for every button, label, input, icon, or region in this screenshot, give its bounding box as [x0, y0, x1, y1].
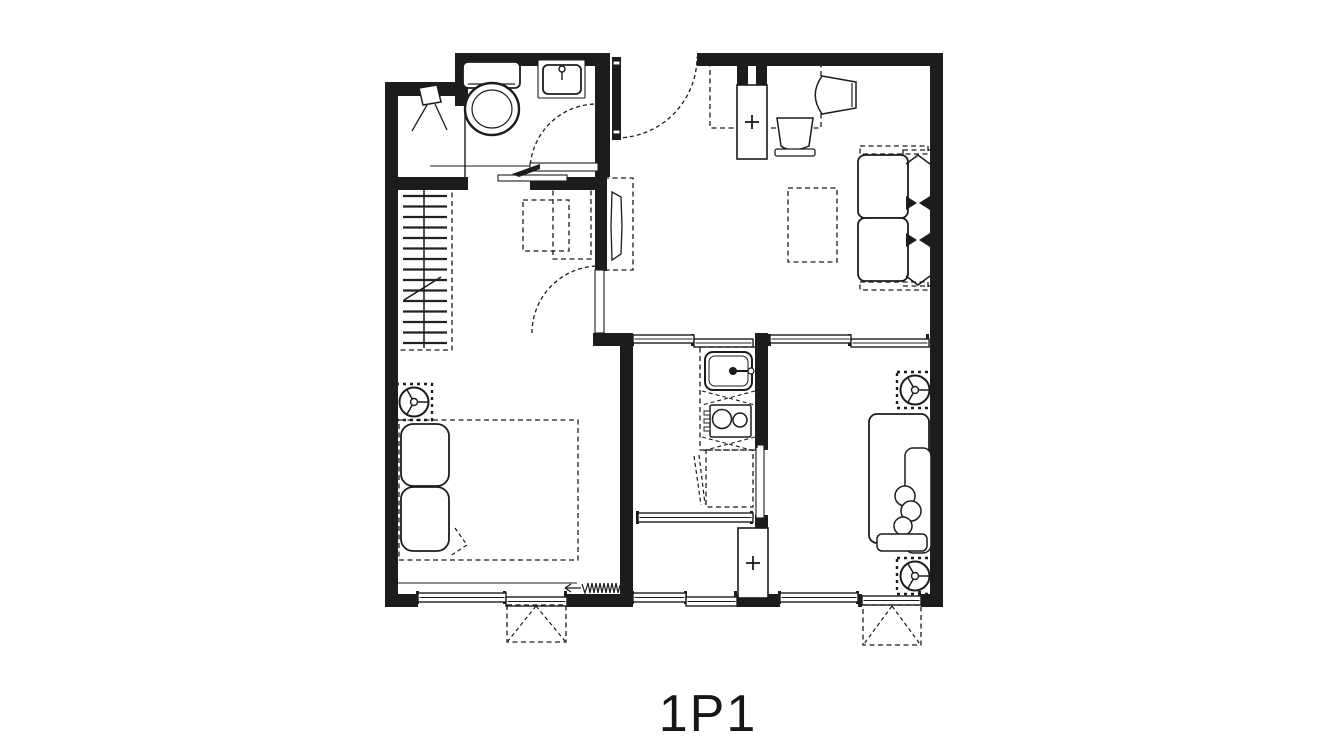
- entry-door-swing: [616, 57, 697, 138]
- bottom-wall-b: [567, 594, 633, 607]
- awning-line: [892, 606, 920, 644]
- shaft-pier-east: [756, 63, 767, 85]
- top-wall-right: [697, 53, 943, 66]
- sofa-armrest: [860, 282, 928, 290]
- bathroom-right-wall: [595, 53, 610, 177]
- bedroom-chair: [553, 186, 591, 259]
- shower-head: [419, 85, 441, 105]
- bedroom-door-leaf: [595, 270, 604, 333]
- toilet-bowl-inner: [472, 90, 512, 128]
- sofa-bowtie: [906, 233, 930, 247]
- left-wall: [385, 82, 398, 607]
- stove-burner: [733, 413, 747, 427]
- kitchen-room2-door-leaf: [756, 445, 764, 518]
- downlight-symbol-hub: [912, 387, 919, 394]
- bathroom-sink-faucet: [559, 66, 565, 72]
- bedroom-door-swing: [532, 266, 599, 333]
- bathroom-door-swing: [530, 104, 597, 171]
- pillow: [401, 424, 449, 486]
- desk-chair-a: [815, 76, 856, 114]
- shower-spray-line: [435, 104, 447, 130]
- plan-title: 1P1: [618, 688, 798, 740]
- right-wall: [930, 53, 943, 607]
- awning-line: [536, 606, 565, 641]
- tv-panel: [611, 192, 622, 260]
- stove-burner: [713, 410, 732, 429]
- sofa-armrest: [860, 146, 928, 154]
- bathroom-door-leaf: [530, 163, 598, 171]
- awning-box: [863, 605, 921, 645]
- floor-plan-drawing: [0, 0, 1342, 754]
- bedroom-kitchen-wall: [620, 337, 633, 607]
- downlight-symbol-hub: [411, 399, 418, 406]
- stove-knob: [704, 427, 710, 431]
- sofa-chevron: [906, 276, 930, 285]
- bottom-wall-e: [921, 594, 943, 607]
- shower-spray-line: [412, 105, 427, 131]
- entry-leaf-tick: [613, 61, 620, 65]
- awning-box: [507, 605, 566, 642]
- room2-cushion: [894, 517, 912, 535]
- bed-sheet-fold: [450, 528, 467, 556]
- sofa-cushion: [858, 155, 908, 218]
- heater-symbol-coil: [582, 583, 620, 593]
- bathroom-door-sill: [498, 175, 567, 181]
- coffee-table: [788, 188, 837, 262]
- entry-leaf-tick: [613, 130, 620, 134]
- bedroom-living-wall: [595, 170, 607, 271]
- heater-symbol-arrow: [565, 584, 581, 592]
- shaft-pier-west: [737, 63, 748, 85]
- sofa-chevron: [906, 155, 930, 164]
- bottom-wall-a: [385, 594, 418, 607]
- entry-door-leaf: [612, 57, 621, 140]
- awning-line: [864, 606, 892, 644]
- downlight-symbol-hub: [912, 573, 919, 580]
- awning-line: [508, 606, 536, 641]
- kitchen-faucet-handle: [748, 368, 754, 374]
- bedroom-desk: [523, 200, 569, 251]
- stove-knob: [704, 411, 710, 415]
- desk-chair-b-back: [775, 149, 815, 156]
- room2-sofa-foot: [877, 534, 927, 551]
- sofa-bowtie: [906, 196, 930, 210]
- sofa-cushion: [858, 218, 908, 281]
- kitchen-appliance-door: [699, 455, 705, 504]
- floor-plan-canvas: 1P1: [0, 0, 1342, 754]
- pillow: [401, 487, 449, 551]
- stove-knob: [704, 419, 710, 423]
- kitchen-cabinet: [706, 450, 753, 507]
- desk-chair-b: [777, 118, 813, 150]
